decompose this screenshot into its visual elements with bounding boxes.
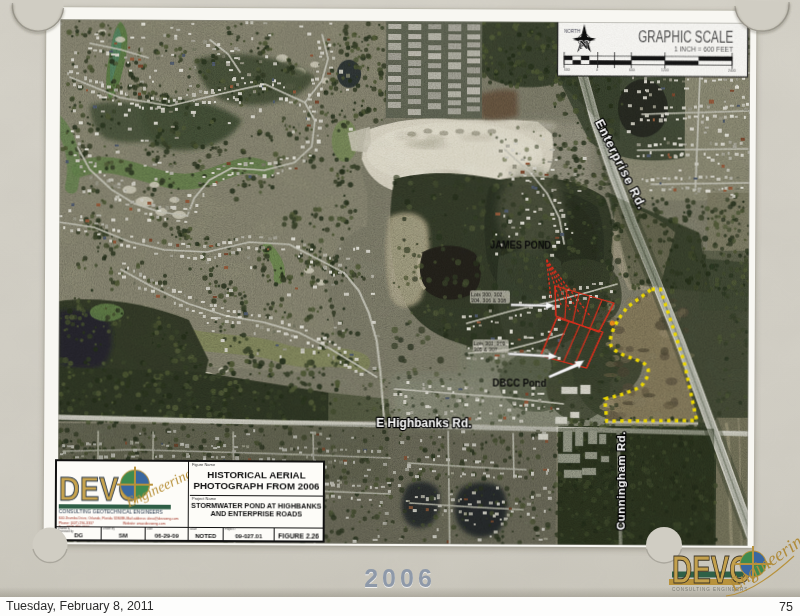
- svg-text:CONSULTING GEOTECHNICAL ENGINE: CONSULTING GEOTECHNICAL ENGINEERS: [59, 508, 164, 515]
- svg-text:Website: www.devoeng.com: Website: www.devoeng.com: [123, 521, 166, 525]
